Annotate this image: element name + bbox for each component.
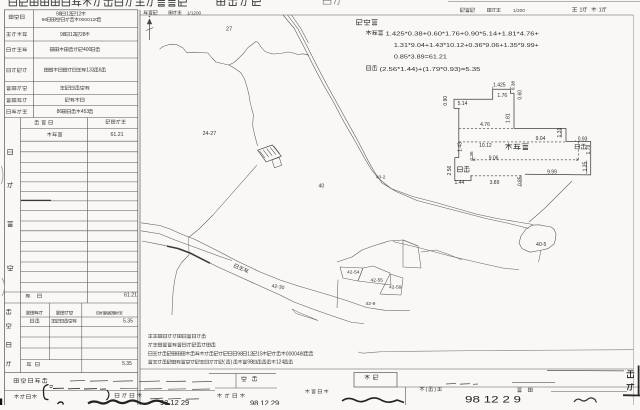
svg-text:42-9: 42-9 bbox=[366, 301, 376, 307]
svg-text:12: 12 bbox=[247, 351, 253, 357]
svg-text:): ) bbox=[231, 360, 233, 366]
svg-text:2.56: 2.56 bbox=[447, 166, 453, 176]
svg-text:(: ( bbox=[425, 387, 427, 393]
svg-text:98 12 29: 98 12 29 bbox=[250, 399, 279, 405]
svg-text:1.31: 1.31 bbox=[557, 128, 563, 138]
svg-text:12: 12 bbox=[70, 32, 76, 38]
svg-text:5.14: 5.14 bbox=[458, 101, 468, 107]
svg-text:1.425*0.38+0.60*1.76+0.90*5.14: 1.425*0.38+0.60*1.76+0.90*5.14+1.81*4.76… bbox=[386, 31, 540, 37]
svg-text:61.21: 61.21 bbox=[124, 293, 137, 299]
svg-text:61.21: 61.21 bbox=[111, 132, 124, 138]
svg-text:0000480: 0000480 bbox=[286, 351, 306, 357]
svg-text:9.04: 9.04 bbox=[536, 136, 546, 142]
svg-text:5.35: 5.35 bbox=[123, 319, 133, 325]
svg-text:1: 1 bbox=[579, 7, 582, 13]
svg-text:0.85*3.89=61.21: 0.85*3.89=61.21 bbox=[394, 55, 447, 61]
svg-text:12: 12 bbox=[66, 12, 72, 18]
svg-text:12: 12 bbox=[76, 12, 82, 18]
svg-text:1.43: 1.43 bbox=[458, 142, 464, 152]
svg-text:5.35: 5.35 bbox=[122, 361, 132, 367]
svg-text:0.60: 0.60 bbox=[518, 90, 524, 100]
svg-text:(: ( bbox=[223, 360, 225, 366]
svg-text:0.85: 0.85 bbox=[517, 176, 523, 186]
svg-text:453: 453 bbox=[81, 109, 90, 115]
svg-text:0.90: 0.90 bbox=[443, 96, 449, 106]
svg-text:400: 400 bbox=[83, 47, 92, 53]
svg-text:27: 27 bbox=[226, 26, 232, 32]
svg-text:98: 98 bbox=[42, 17, 48, 23]
svg-text:): ) bbox=[434, 387, 436, 393]
svg-text:98 12 2 9: 98 12 2 9 bbox=[465, 395, 521, 405]
svg-text:1.35: 1.35 bbox=[583, 161, 589, 171]
svg-text:98: 98 bbox=[60, 32, 66, 38]
svg-text:1.44: 1.44 bbox=[455, 180, 465, 186]
svg-text:1/200: 1/200 bbox=[513, 8, 525, 14]
svg-text:24-27: 24-27 bbox=[203, 131, 217, 137]
svg-text:42-54: 42-54 bbox=[347, 269, 360, 275]
svg-text:98: 98 bbox=[237, 351, 243, 357]
svg-text:4.76: 4.76 bbox=[480, 122, 490, 128]
svg-text:98: 98 bbox=[247, 360, 253, 366]
svg-text:6: 6 bbox=[99, 68, 102, 74]
svg-text:40-5: 40-5 bbox=[536, 242, 546, 248]
svg-text:0000120: 0000120 bbox=[79, 17, 98, 23]
svg-text:15: 15 bbox=[257, 351, 263, 357]
svg-text:1/1200: 1/1200 bbox=[187, 11, 201, 16]
svg-text:1.31*9.04+1.43*10.12+0.36*9.06: 1.31*9.04+1.43*10.12+0.36*9.06+1.35*9.99… bbox=[394, 43, 540, 49]
svg-text:86: 86 bbox=[57, 109, 63, 115]
svg-text:42-30: 42-30 bbox=[271, 283, 285, 291]
svg-text:124: 124 bbox=[276, 360, 285, 366]
svg-text:1.79: 1.79 bbox=[586, 145, 592, 155]
svg-text:1: 1 bbox=[599, 7, 602, 13]
svg-text:0.36: 0.36 bbox=[469, 151, 474, 161]
svg-text:40: 40 bbox=[319, 184, 325, 190]
svg-text:40-2: 40-2 bbox=[376, 175, 386, 181]
svg-text:1.425: 1.425 bbox=[493, 82, 506, 88]
svg-text:133: 133 bbox=[86, 68, 95, 74]
svg-text:10.12: 10.12 bbox=[479, 143, 492, 149]
svg-text:3.89: 3.89 bbox=[490, 180, 500, 186]
svg-text:9.06: 9.06 bbox=[489, 156, 499, 162]
svg-text:28: 28 bbox=[80, 32, 86, 38]
svg-text:1.76: 1.76 bbox=[497, 93, 507, 99]
svg-text:(2.56*1.44)+(1.79*0.93)=5.35: (2.56*1.44)+(1.79*0.93)=5.35 bbox=[380, 67, 482, 73]
svg-text:98: 98 bbox=[56, 12, 62, 18]
svg-text:1.81: 1.81 bbox=[506, 113, 512, 123]
svg-text:9.99: 9.99 bbox=[547, 170, 557, 176]
svg-text:0.93: 0.93 bbox=[578, 136, 588, 142]
svg-text:0.38: 0.38 bbox=[511, 81, 517, 91]
svg-text:42-59: 42-59 bbox=[389, 284, 402, 290]
